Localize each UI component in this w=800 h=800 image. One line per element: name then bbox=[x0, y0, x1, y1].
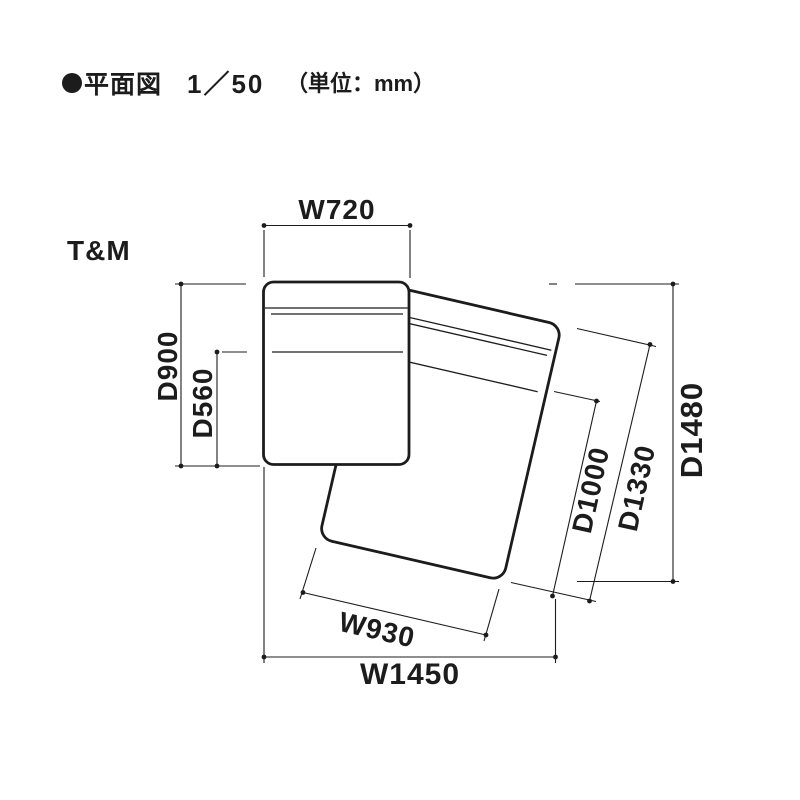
dim-arrow-dot bbox=[671, 579, 676, 584]
dim-arrow-dot bbox=[215, 464, 220, 469]
dim-label-d1480: D1480 bbox=[674, 382, 709, 478]
dim-label-d560: D560 bbox=[187, 368, 218, 439]
dim-arrow-dot bbox=[262, 223, 267, 228]
chair-outline bbox=[264, 282, 410, 465]
dim-arrow-dot bbox=[594, 399, 599, 404]
dim-arrow-dot bbox=[671, 282, 676, 287]
dimension-d560: D560 bbox=[187, 350, 247, 469]
dim-arrow-dot bbox=[215, 350, 220, 355]
plan-view-canvas: 平面図 1／50 （単位：mm） T&M W720 bbox=[0, 0, 800, 800]
dim-arrow-dot bbox=[408, 223, 413, 228]
dimension-w720: W720 bbox=[262, 194, 413, 278]
dim-arrow-dot bbox=[648, 342, 653, 347]
dimension-d1000: D1000 bbox=[550, 392, 615, 599]
unit-note: （単位：mm） bbox=[286, 71, 435, 96]
dim-label-w1450: W1450 bbox=[360, 658, 460, 691]
dim-arrow-dot bbox=[301, 590, 306, 595]
model-label: T&M bbox=[67, 235, 131, 266]
bullet-icon bbox=[62, 73, 82, 93]
page-title: 平面図 bbox=[84, 71, 162, 99]
dim-arrow-dot bbox=[550, 594, 555, 599]
chair-shape bbox=[264, 282, 410, 465]
dim-label-w930: W930 bbox=[336, 606, 418, 654]
dim-label-d1330: D1330 bbox=[612, 442, 661, 534]
dim-arrow-dot bbox=[262, 655, 267, 660]
dim-arrow-dot bbox=[179, 282, 184, 287]
plan-view-page: 平面図 1／50 （単位：mm） T&M W720 bbox=[0, 0, 800, 800]
dim-label-d900: D900 bbox=[152, 331, 183, 402]
dim-arrow-dot bbox=[587, 599, 592, 604]
dim-arrow-dot bbox=[484, 633, 489, 638]
dim-label-w720: W720 bbox=[298, 194, 375, 225]
dim-arrow-dot bbox=[179, 464, 184, 469]
drawing-scale: 1／50 bbox=[187, 69, 264, 99]
dim-arrow-dot bbox=[553, 655, 558, 660]
